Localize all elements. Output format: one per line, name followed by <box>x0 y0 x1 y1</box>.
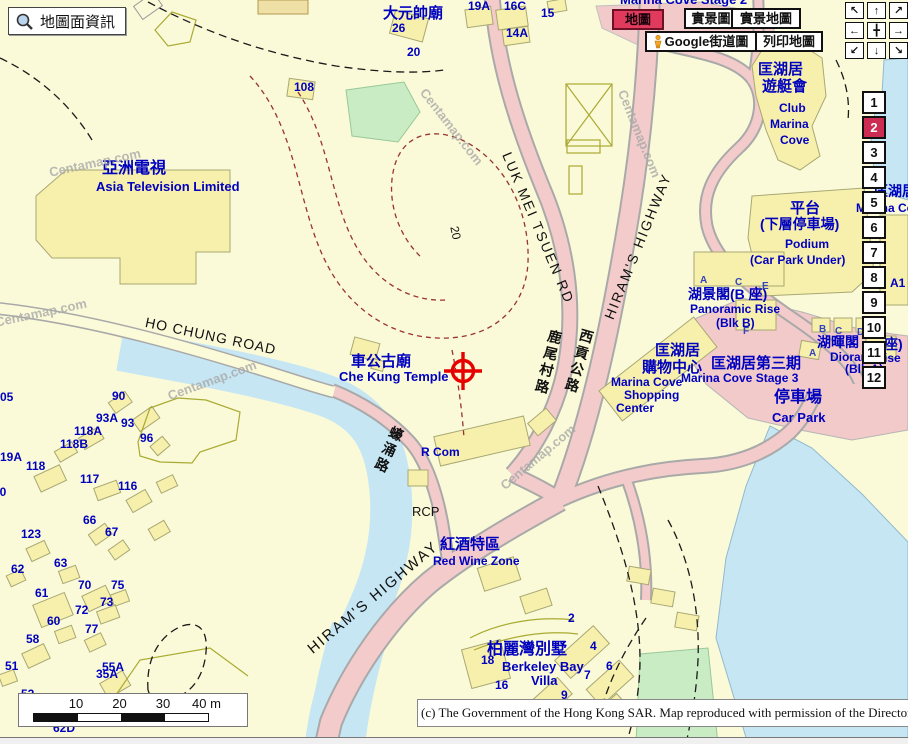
pegman-icon <box>654 35 662 49</box>
scale-segments <box>33 713 209 722</box>
nav-up-button[interactable]: ↑ <box>867 2 886 19</box>
nav-right-button[interactable]: → <box>889 22 908 39</box>
pan-arrow-pad: ↖↑↗←╋→↙↓↘ <box>845 2 908 59</box>
magnifier-icon <box>15 12 34 31</box>
print-map-button[interactable]: 列印地圖 <box>755 31 823 52</box>
scale-tick: 40 m <box>192 696 221 711</box>
real-view-map-button[interactable]: 實景地圖 <box>731 8 801 29</box>
zoom-level-3-button[interactable]: 3 <box>862 141 886 164</box>
copyright-bar: (c) The Government of the Hong Kong SAR.… <box>417 699 908 727</box>
map-canvas[interactable] <box>0 0 908 744</box>
map-tab-button[interactable]: 地圖 <box>612 9 664 30</box>
zoom-level-1-button[interactable]: 1 <box>862 91 886 114</box>
nav-down-button[interactable]: ↓ <box>867 42 886 59</box>
zoom-level-strip: 123456789101112 <box>862 91 886 389</box>
zoom-level-6-button[interactable]: 6 <box>862 216 886 239</box>
google-street-view-button[interactable]: Google街道圖 <box>645 31 757 52</box>
nav-down-right-button[interactable]: ↘ <box>889 42 908 59</box>
zoom-level-8-button[interactable]: 8 <box>862 266 886 289</box>
scale-ticks: 10203040 m <box>19 696 247 710</box>
copyright-text: (c) The Government of the Hong Kong SAR.… <box>418 705 908 721</box>
scale-tick: 20 <box>112 696 126 711</box>
zoom-level-7-button[interactable]: 7 <box>862 241 886 264</box>
nav-up-right-button[interactable]: ↗ <box>889 2 908 19</box>
zoom-level-5-button[interactable]: 5 <box>862 191 886 214</box>
google-street-view-label: Google街道圖 <box>665 33 749 50</box>
zoom-level-12-button[interactable]: 12 <box>862 366 886 389</box>
map-info-label: 地圖面資訊 <box>40 11 115 32</box>
scale-tick: 10 <box>69 696 83 711</box>
real-view-button[interactable]: 實景圖 <box>684 8 738 29</box>
scale-bar: 10203040 m <box>18 693 248 727</box>
zoom-level-9-button[interactable]: 9 <box>862 291 886 314</box>
scale-tick: 30 <box>156 696 170 711</box>
zoom-level-10-button[interactable]: 10 <box>862 316 886 339</box>
zoom-level-4-button[interactable]: 4 <box>862 166 886 189</box>
nav-down-left-button[interactable]: ↙ <box>845 42 864 59</box>
map-application: 大元帥廟262019A16C14A15108Marina Cove Stage … <box>0 0 908 744</box>
map-info-button[interactable]: 地圖面資訊 <box>8 7 126 35</box>
zoom-level-2-button[interactable]: 2 <box>862 116 886 139</box>
nav-left-button[interactable]: ← <box>845 22 864 39</box>
zoom-level-11-button[interactable]: 11 <box>862 341 886 364</box>
bottom-strip <box>0 737 908 744</box>
nav-up-left-button[interactable]: ↖ <box>845 2 864 19</box>
nav-center-button[interactable]: ╋ <box>867 22 886 39</box>
